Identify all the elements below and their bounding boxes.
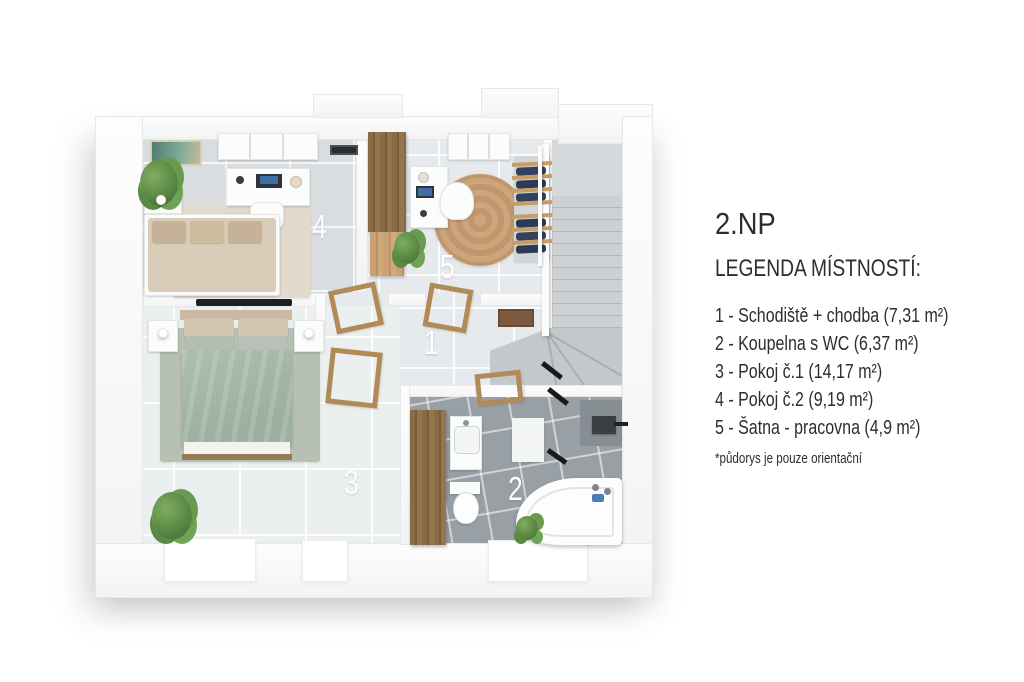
wall-room4-room5 xyxy=(356,140,368,293)
window xyxy=(164,538,256,582)
plant xyxy=(516,516,538,540)
legend-item-text: 2 - Koupelna s WC (6,37 m²) xyxy=(715,330,919,358)
wall-room5-hall xyxy=(480,293,546,306)
desk-accessory xyxy=(420,210,427,217)
legend-footnote: *půdorys je pouze orientační xyxy=(715,451,975,467)
room-label-room3: 3 xyxy=(344,466,362,499)
desk xyxy=(226,168,310,206)
cushion xyxy=(190,221,224,243)
legend-item: 3 - Pokoj č.1 (14,17 m²) xyxy=(715,358,975,386)
vent-grille xyxy=(330,145,358,155)
bathroom-cabinet xyxy=(410,410,446,545)
plant xyxy=(394,232,420,264)
door-frame-bathroom xyxy=(474,370,523,407)
door-frame-room3 xyxy=(325,347,383,408)
floor-plan: 1 2 3 4 5 xyxy=(88,88,663,603)
room-number: 5 xyxy=(440,250,455,283)
legend-item-text: 5 - Šatna - pracovna (4,9 m²) xyxy=(715,414,920,442)
blanket-texture xyxy=(182,350,292,446)
legend-heading: LEGENDA MÍSTNOSTÍ: xyxy=(715,255,975,283)
room-number: 4 xyxy=(312,210,327,243)
room-number: 1 xyxy=(424,326,439,359)
legend-item-text: 3 - Pokoj č.1 (14,17 m²) xyxy=(715,358,882,386)
bath-mat xyxy=(512,418,544,462)
toilet xyxy=(453,492,479,524)
wall-outer-left xyxy=(95,116,143,598)
wall-bathroom-top xyxy=(400,385,476,397)
wall-shelf xyxy=(218,133,318,160)
bed-pillow xyxy=(184,318,234,338)
plant xyxy=(152,492,192,540)
laptop-screen xyxy=(418,188,432,196)
bed-blanket xyxy=(182,350,292,446)
legend-list: 1 - Schodiště + chodba (7,31 m²) 2 - Kou… xyxy=(715,302,975,442)
table-lamp xyxy=(156,195,166,205)
wall-shelf xyxy=(448,133,510,160)
wall-lamp xyxy=(158,328,168,338)
daybed xyxy=(144,214,280,296)
tv xyxy=(196,299,292,306)
shower-arm xyxy=(614,422,628,426)
room-label-room4: 4 xyxy=(312,210,330,243)
wall-outer-right xyxy=(622,116,653,598)
window xyxy=(488,540,588,582)
stair-landing xyxy=(552,140,622,196)
desk-accessory xyxy=(418,172,429,183)
wall-lamp xyxy=(304,328,314,338)
wall-chimney-bump xyxy=(313,94,403,118)
staircase-flight xyxy=(552,196,623,330)
legend-item: 5 - Šatna - pracovna (4,9 m²) xyxy=(715,414,975,442)
legend-item: 4 - Pokoj č.2 (9,19 m²) xyxy=(715,386,975,414)
wall-room5-hall xyxy=(388,293,426,306)
floor-title: 2.NP xyxy=(715,206,975,242)
faucet xyxy=(463,420,469,426)
sink-basin xyxy=(454,426,480,454)
desk-accessory xyxy=(290,176,302,188)
legend-panel: 2.NP LEGENDA MÍSTNOSTÍ: 1 - Schodiště + … xyxy=(715,206,975,467)
cushion xyxy=(152,221,186,243)
doormat xyxy=(498,309,534,327)
room-number: 2 xyxy=(508,472,523,505)
rack-pole xyxy=(538,146,542,266)
bed-sheet xyxy=(184,442,290,454)
bed-pillow xyxy=(238,318,288,338)
legend-item: 1 - Schodiště + chodba (7,31 m²) xyxy=(715,302,975,330)
room-label-bathroom: 2 xyxy=(508,472,526,505)
double-bed xyxy=(180,310,292,460)
room-label-room5: 5 xyxy=(440,250,458,283)
wall-bathroom-left xyxy=(400,385,410,545)
cushion xyxy=(228,221,262,243)
window xyxy=(302,540,348,582)
laptop-screen xyxy=(260,176,278,184)
bath-accessory xyxy=(592,494,604,502)
legend-item-text: 4 - Pokoj č.2 (9,19 m²) xyxy=(715,386,873,414)
desk-accessory xyxy=(236,176,244,184)
legend-heading-text: LEGENDA MÍSTNOSTÍ: xyxy=(715,255,921,283)
wardrobe xyxy=(368,132,406,232)
room-number: 3 xyxy=(344,466,359,499)
legend-footnote-text: *půdorys je pouze orientační xyxy=(715,451,862,467)
legend-item-text: 1 - Schodiště + chodba (7,31 m²) xyxy=(715,302,948,330)
floor-title-text: 2.NP xyxy=(715,206,776,242)
legend-item: 2 - Koupelna s WC (6,37 m²) xyxy=(715,330,975,358)
bed-foot-rail xyxy=(182,454,292,460)
room-label-hallway: 1 xyxy=(424,326,442,359)
shower-head xyxy=(592,416,616,434)
wall-chimney-bump xyxy=(481,88,559,118)
desk-chair xyxy=(440,182,474,220)
faucet xyxy=(604,488,611,495)
faucet xyxy=(592,484,599,491)
wall-bathroom-top xyxy=(524,385,622,397)
sink-vanity xyxy=(450,416,482,470)
